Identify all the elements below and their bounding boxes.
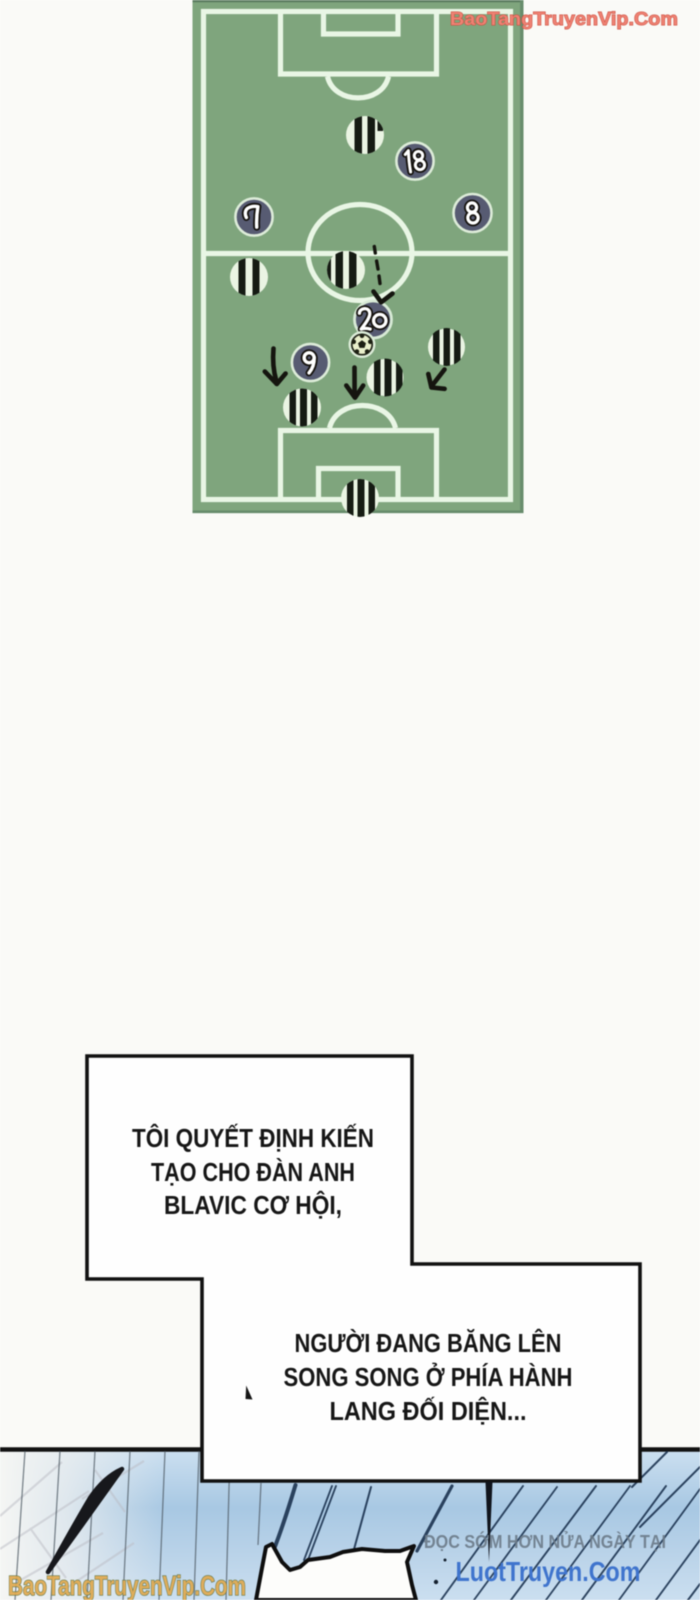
svg-text:LuotTruyen.Com: LuotTruyen.Com — [456, 1556, 641, 1587]
svg-text:TÔI QUYẾT ĐỊNH KIẾN: TÔI QUYẾT ĐỊNH KIẾN — [132, 1123, 374, 1153]
svg-text:BaoTangTruyenVip.Com: BaoTangTruyenVip.Com — [450, 9, 678, 29]
svg-text:TẠO CHO ĐÀN ANH: TẠO CHO ĐÀN ANH — [151, 1157, 355, 1187]
svg-text:ĐỌC SỚM HƠN NỬA NGÀY TẠI: ĐỌC SỚM HƠN NỬA NGÀY TẠI — [424, 1531, 666, 1552]
svg-text:NGƯỜI ĐANG BĂNG LÊN: NGƯỜI ĐANG BĂNG LÊN — [295, 1328, 562, 1358]
svg-text:BaoTangTruyenVip.Com: BaoTangTruyenVip.Com — [8, 1570, 246, 1600]
svg-text:BLAVIC CƠ HỘI,: BLAVIC CƠ HỘI, — [164, 1190, 342, 1220]
svg-text:LANG ĐỐI DIỆN...: LANG ĐỐI DIỆN... — [330, 1396, 527, 1426]
svg-text:SONG SONG Ở PHÍA HÀNH: SONG SONG Ở PHÍA HÀNH — [284, 1361, 573, 1392]
